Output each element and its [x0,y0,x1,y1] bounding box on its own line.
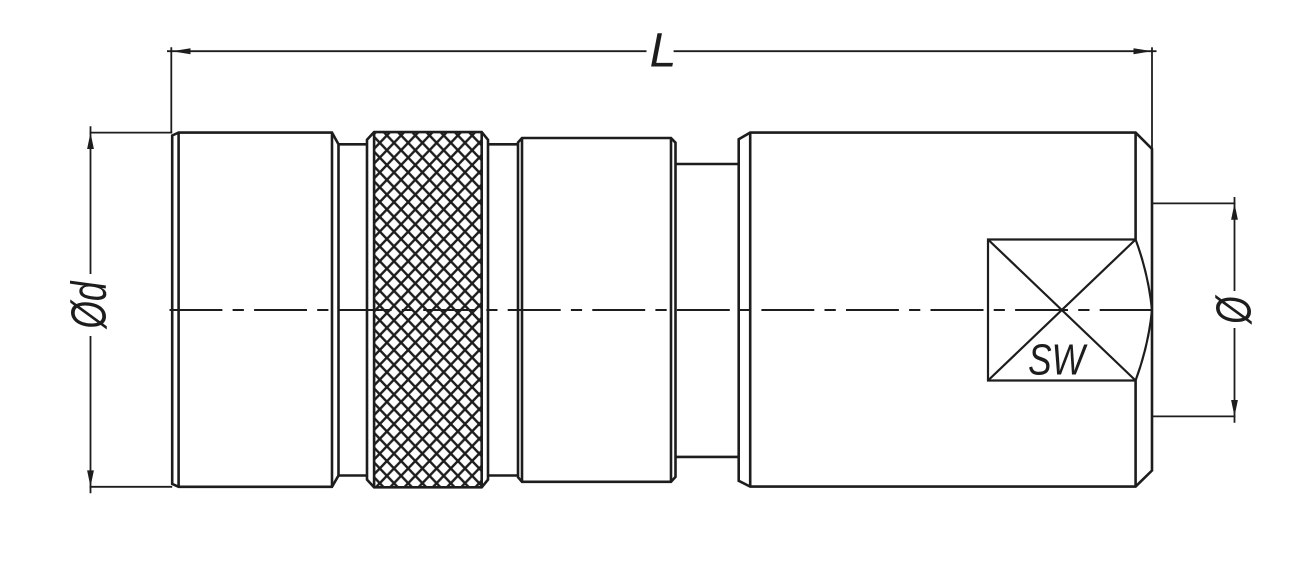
svg-text:Ød: Ød [62,280,117,330]
svg-text:SW: SW [1028,336,1088,385]
svg-text:L: L [650,25,677,78]
svg-text:Ø: Ø [1207,294,1262,325]
